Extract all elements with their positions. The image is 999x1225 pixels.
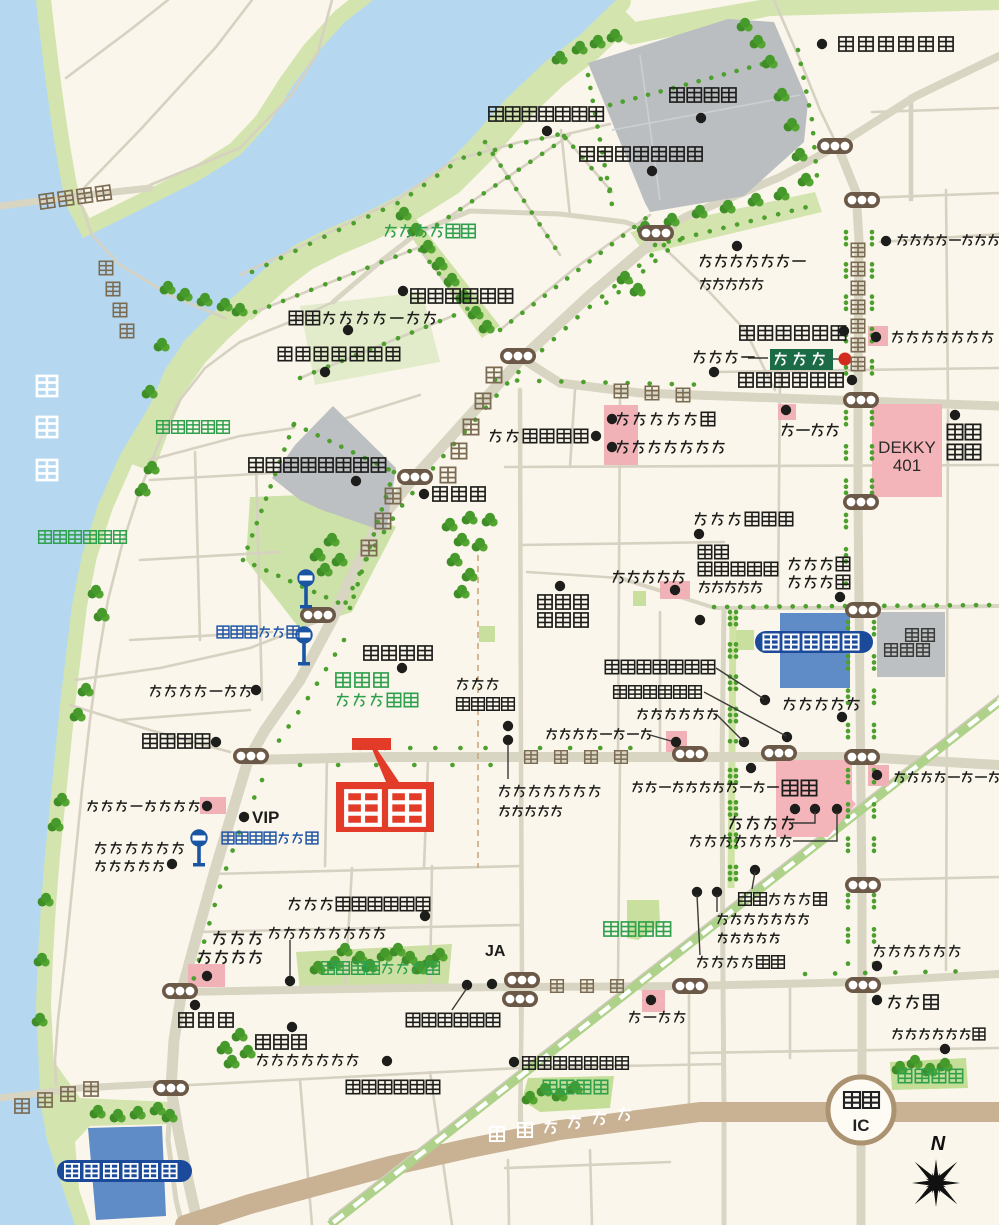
svg-text:JA: JA: [485, 943, 506, 960]
svg-text:IC: IC: [853, 1116, 870, 1135]
svg-text:401: 401: [893, 456, 921, 475]
svg-text:DEKKY: DEKKY: [878, 438, 936, 457]
svg-text:N: N: [931, 1133, 946, 1155]
svg-text:VIP: VIP: [252, 808, 279, 827]
